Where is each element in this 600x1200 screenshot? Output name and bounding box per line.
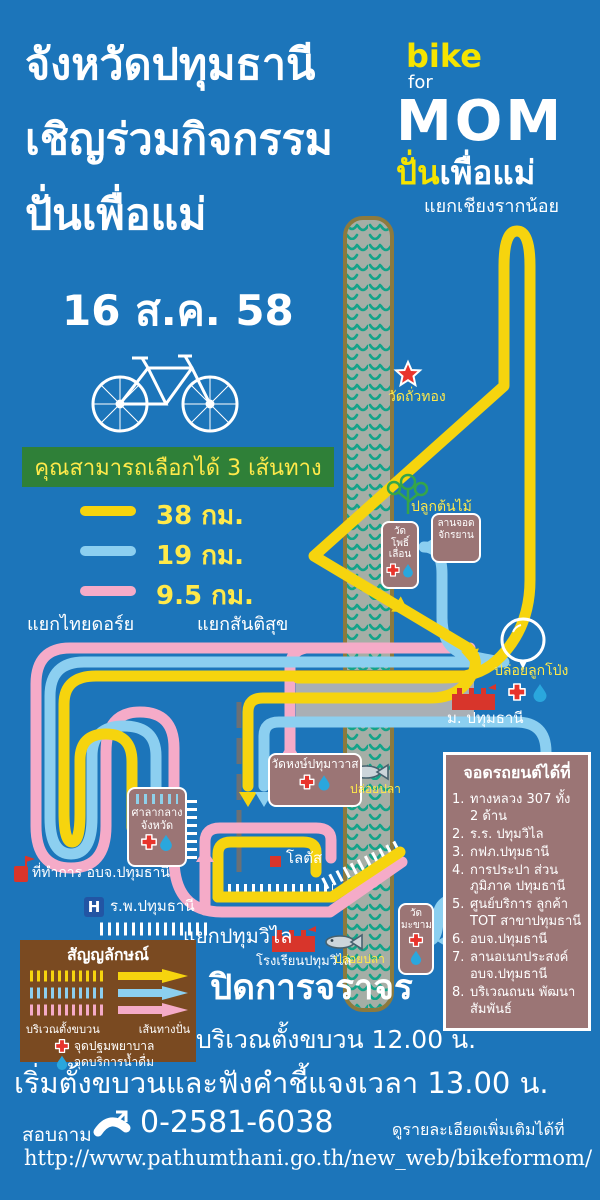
poi-wat-pho-line1: วัด (384, 526, 416, 538)
poi-wat-pho-aid-icons (384, 562, 416, 578)
route-swatch-38km (80, 506, 136, 516)
route-distance-9-5km: 9.5 กม. (156, 575, 254, 616)
lotus-store-icon (270, 856, 281, 867)
parking-item-num: 2. (452, 827, 470, 844)
contact-url: http://www.pathumthani.go.th/new_web/bik… (24, 1146, 590, 1170)
parking-item-text: ลานอเนกประสงค์ อบจ.ปทุมธานี (470, 950, 582, 984)
hospital-icon: H (84, 897, 104, 917)
poi-city-hall-line1: ศาลากลาง (130, 807, 184, 820)
route-swatch-9-5km (80, 586, 136, 596)
poster-title-line3: ปั่นเพื่อแม่ (25, 180, 207, 248)
water-icon (534, 684, 547, 702)
legend-row-yellow (26, 968, 190, 985)
poi-wat-hong-name: วัดหงษ์ปทุมาวาส (271, 758, 359, 772)
parking-item-text: ศูนย์บริการ ลูกค้า TOT สาขาปทุมธานี (470, 897, 582, 931)
first-aid-icon (509, 684, 525, 700)
parking-item: 1.ทางหลวง 307 ทั้ง 2 ด้าน (452, 792, 582, 826)
traffic-closure-notice: ปิดการจราจร (210, 960, 413, 1015)
logo-bike-word: bike (406, 40, 596, 72)
poi-wat-hong: วัดหงษ์ปทุมาวาส (268, 753, 362, 807)
contact-phone-number: 0-2581-6038 (140, 1105, 333, 1140)
parking-list: 1.ทางหลวง 307 ทั้ง 2 ด้าน 2.ร.ร. ปทุมวิไ… (452, 792, 582, 1019)
parking-item: 8.บริเวณถนน พัฒนาสัมพันธ์ (452, 985, 582, 1019)
parking-item: 3.กฟภ.ปทุมธานี (452, 845, 582, 862)
legend-route-label: เส้นทางปั่น (139, 1020, 190, 1038)
logo-mom-word: MOM (396, 94, 596, 150)
parking-item-num: 1. (452, 792, 470, 826)
label-junction-pathum-wilai: แยกปทุมวิไล (183, 925, 292, 947)
map-legend-box: สัญญลักษณ์ บริเวณตั้งขบวน เส้นทางปั่น จุ… (20, 940, 196, 1062)
contact-more-info-label: ดูรายละเอียดเพิ่มเติมได้ที่ (392, 1118, 565, 1143)
label-lotus: โลตัส (286, 850, 322, 867)
poi-bike-parking-line2: จักรยาน (434, 530, 478, 542)
parking-item-num: 7. (452, 950, 470, 984)
parking-item-num: 3. (452, 845, 470, 862)
label-junction-chiang-rak-noi: แยกเชียงรากน้อย (424, 197, 559, 217)
poi-wat-hong-aid-icons (295, 773, 335, 791)
start-time-notice: เริ่มตั้งขบวนและฟังคำชี้แจงเวลา 13.00 น. (14, 1060, 592, 1106)
poi-wat-makham-line2: มะขาม (401, 920, 431, 932)
route-chooser-banner: คุณสามารถเลือกได้ 3 เส้นทาง (22, 447, 334, 487)
poi-city-hall: ศาลากลาง จังหวัด (127, 787, 187, 867)
parking-item-num: 5. (452, 897, 470, 931)
poi-bike-parking: ลานจอด จักรยาน (431, 513, 481, 563)
parking-item: 7.ลานอเนกประสงค์ อบจ.ปทุมธานี (452, 950, 582, 984)
parking-item-num: 4. (452, 863, 470, 897)
label-junction-santisuk: แยกสันติสุข (197, 615, 288, 635)
wat-thua-thong-star-icon (396, 362, 420, 385)
label-release-balloons: ปล่อยลูกโป่ง (494, 664, 568, 679)
poi-wat-makham-line1: วัด (401, 908, 431, 920)
label-release-fish-upper: ปล่อยปลา (350, 783, 401, 796)
parking-item: 2.ร.ร. ปทุมวิไล (452, 827, 582, 844)
parking-item: 4.การประปา ส่วนภูมิภาค ปทุมธานี (452, 863, 582, 897)
parking-item-text: กฟภ.ปทุมธานี (470, 845, 582, 862)
legend-row-blue (26, 985, 190, 1002)
parking-item: 6.อบจ.ปทุมธานี (452, 932, 582, 949)
poster-title-line2: เชิญร่วมกิจกรรม (25, 105, 333, 173)
route-swatch-19km (80, 546, 136, 556)
route-distance-38km: 38 กม. (156, 495, 244, 536)
parking-item-text: การประปา ส่วนภูมิภาค ปทุมธานี (470, 863, 582, 897)
first-aid-icon (54, 1038, 70, 1054)
legend-row-pink (26, 1002, 190, 1019)
poi-wat-pho-line3: เลื่อน (384, 549, 416, 561)
label-wat-thua-thong: วัดถั่วทอง (388, 390, 446, 405)
poi-wat-pho-line2: โพธิ์ (384, 538, 416, 550)
parking-item: 5.ศูนย์บริการ ลูกค้า TOT สาขาปทุมธานี (452, 897, 582, 931)
parking-item-text: ร.ร. ปทุมวิไล (470, 827, 582, 844)
staging-time-notice: บริเวณตั้งขบวน 12.00 น. (196, 1020, 476, 1060)
parking-item-num: 6. (452, 932, 470, 949)
label-hospital: ร.พ.ปทุมธานี (110, 898, 195, 915)
poster-title-line1: จังหวัดปทุมธานี (25, 30, 315, 98)
phone-icon (92, 1106, 134, 1144)
legend-title: สัญญลักษณ์ (26, 943, 190, 968)
parking-item-text: บริเวณถนน พัฒนาสัมพันธ์ (470, 985, 582, 1019)
parking-item-text: อบจ.ปทุมธานี (470, 932, 582, 949)
parking-info-box: จอดรถยนต์ได้ที่ 1.ทางหลวง 307 ทั้ง 2 ด้า… (443, 752, 591, 1031)
label-university: ม. ปทุมธานี (447, 710, 524, 727)
logo-thai-word: ปั่นเพื่อแม่ (396, 156, 596, 189)
bicycle-icon (93, 356, 237, 431)
parking-item-num: 8. (452, 985, 470, 1019)
event-date: 16 ส.ค. 58 (62, 278, 294, 344)
parking-title: จอดรถยนต์ได้ที่ (452, 761, 582, 786)
label-junction-thai-dory: แยกไทยดอร์ย (27, 615, 134, 635)
parking-item-text: ทางหลวง 307 ทั้ง 2 ด้าน (470, 792, 582, 826)
logo-thai-yellow: ปั่น (396, 153, 440, 192)
poi-city-hall-aid-icons (137, 833, 177, 851)
poi-wat-pho-luean: วัด โพธิ์ เลื่อน (381, 521, 419, 589)
logo-thai-white: เพื่อแม่ (440, 153, 536, 192)
label-pao-office: ที่ทำการ อบจ.ปทุมธานี (32, 866, 170, 881)
legend-staging-label: บริเวณตั้งขบวน (26, 1020, 100, 1038)
poi-city-hall-line2: จังหวัด (130, 820, 184, 833)
poi-bike-parking-line1: ลานจอด (434, 518, 478, 530)
poster-root: { "poster": { "title_line1": "จังหวัดปทุ… (0, 0, 600, 1200)
bike-for-mom-logo: bike for MOM ปั่นเพื่อแม่ (396, 40, 596, 189)
city-hall-hatch (136, 794, 178, 804)
route-distance-19km: 19 กม. (156, 535, 244, 576)
route-chooser-heading: คุณสามารถเลือกได้ 3 เส้นทาง (34, 450, 321, 485)
